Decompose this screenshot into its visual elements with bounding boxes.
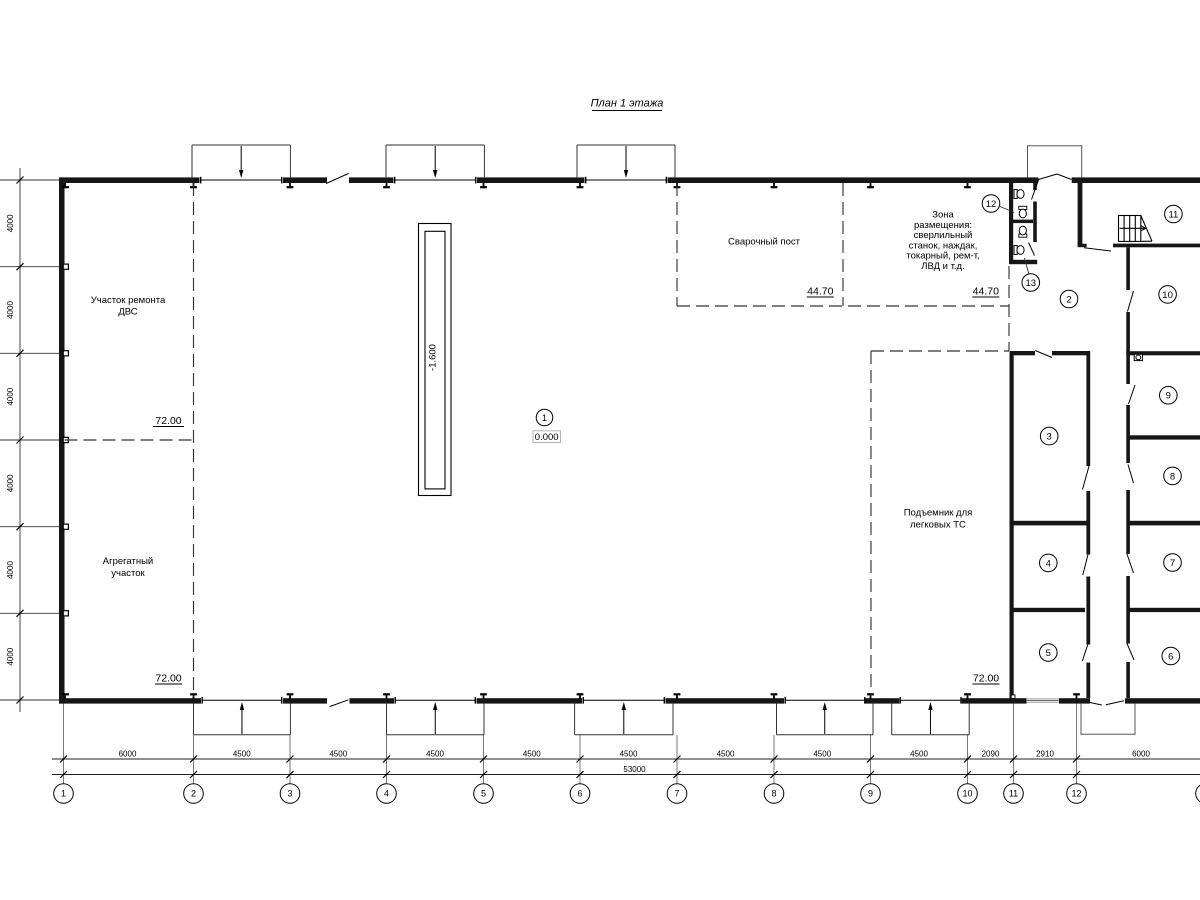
svg-text:7: 7	[1170, 558, 1175, 569]
svg-text:9: 9	[868, 789, 873, 799]
svg-text:6000: 6000	[119, 750, 137, 759]
svg-text:4: 4	[1046, 558, 1051, 569]
svg-text:7: 7	[674, 789, 679, 799]
svg-text:4000: 4000	[6, 561, 15, 579]
svg-text:1: 1	[61, 789, 66, 799]
svg-text:5: 5	[1046, 648, 1051, 659]
svg-text:0.000: 0.000	[535, 432, 559, 443]
svg-text:44.70: 44.70	[807, 286, 833, 298]
svg-text:12: 12	[1071, 789, 1081, 799]
svg-text:легковых ТС: легковых ТС	[910, 520, 966, 531]
svg-text:72.00: 72.00	[973, 673, 999, 685]
svg-text:11: 11	[1168, 209, 1178, 220]
svg-text:Сварочный пост: Сварочный пост	[728, 237, 801, 248]
svg-text:2: 2	[1066, 294, 1071, 305]
svg-text:5: 5	[481, 789, 486, 799]
svg-text:4: 4	[384, 789, 389, 799]
svg-text:72.00: 72.00	[155, 415, 181, 427]
svg-text:53000: 53000	[623, 765, 646, 774]
svg-text:8: 8	[771, 789, 776, 799]
svg-text:44.70: 44.70	[973, 286, 999, 298]
svg-text:10: 10	[962, 789, 972, 799]
svg-text:2910: 2910	[1036, 750, 1054, 759]
svg-text:6000: 6000	[1132, 750, 1150, 759]
svg-text:участок: участок	[111, 568, 145, 579]
svg-text:-1.600: -1.600	[428, 344, 439, 371]
svg-text:4500: 4500	[329, 750, 347, 759]
svg-text:72.00: 72.00	[155, 673, 181, 685]
svg-text:4500: 4500	[620, 750, 638, 759]
svg-text:4000: 4000	[6, 387, 15, 405]
svg-text:4000: 4000	[6, 214, 15, 232]
svg-text:2: 2	[191, 789, 196, 799]
svg-text:9: 9	[1166, 391, 1171, 402]
svg-text:4500: 4500	[523, 750, 541, 759]
svg-text:4500: 4500	[910, 750, 928, 759]
svg-text:Подъемник для: Подъемник для	[904, 508, 973, 519]
svg-text:4000: 4000	[6, 474, 15, 492]
svg-text:4500: 4500	[233, 750, 251, 759]
svg-text:4000: 4000	[6, 647, 15, 665]
svg-text:11: 11	[1009, 789, 1018, 799]
svg-text:1: 1	[542, 413, 547, 423]
svg-text:6: 6	[1168, 651, 1173, 662]
svg-text:3: 3	[287, 789, 292, 799]
svg-text:3: 3	[1047, 432, 1052, 443]
svg-text:10: 10	[1162, 290, 1173, 301]
svg-text:8: 8	[1170, 471, 1175, 482]
svg-text:4000: 4000	[6, 301, 15, 319]
svg-text:Агрегатный: Агрегатный	[103, 556, 153, 567]
svg-text:Участок ремонта: Участок ремонта	[91, 295, 166, 306]
svg-text:4500: 4500	[717, 750, 735, 759]
svg-text:ЛВД и т.д.: ЛВД и т.д.	[921, 261, 965, 272]
svg-text:План 1 этажа: План 1 этажа	[591, 98, 664, 110]
svg-text:4500: 4500	[426, 750, 444, 759]
svg-text:12: 12	[986, 199, 997, 210]
svg-text:13: 13	[1026, 278, 1037, 289]
svg-text:4500: 4500	[813, 750, 831, 759]
svg-text:2090: 2090	[982, 750, 1000, 759]
svg-text:6: 6	[577, 789, 582, 799]
svg-text:ДВС: ДВС	[118, 306, 137, 317]
